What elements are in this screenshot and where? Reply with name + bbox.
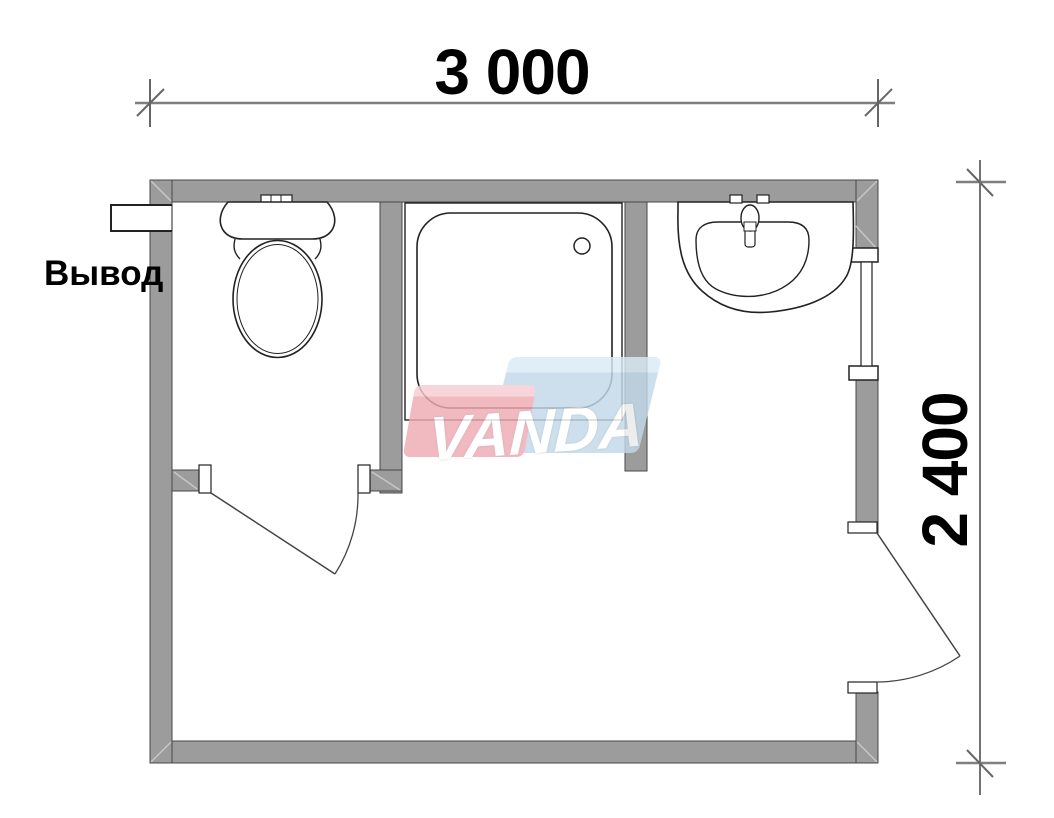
wall-partition-shower [625,202,647,471]
door-toilet-room [199,465,370,574]
wall-right-middle [856,380,878,533]
supply-valve-right [757,195,769,203]
door-jamb-right [358,465,370,493]
shower-tray [405,203,622,420]
door-jamb-bottom [848,682,877,693]
toilet-bowl [233,241,322,358]
dimension-width-label: 3 000 [432,40,592,104]
wall-partition-toilet [380,202,402,493]
toilet-cistern [220,202,334,239]
window-jamb-bottom [849,366,878,380]
floor-plan-drawing [0,0,1054,818]
pipe-outlet [111,205,172,231]
washbasin [678,195,854,312]
floor-plan-canvas: 3 000 2 400 Вывод VANDA [0,0,1054,818]
wall-bottom [150,741,878,763]
toilet [220,195,334,358]
window [849,248,878,380]
outlet-label: Вывод [44,255,163,293]
shower-drain [574,238,590,254]
door-swing-arc [335,493,358,574]
window-glazing [861,262,872,366]
door-leaf [211,493,335,574]
door-jamb-top [848,522,877,533]
dimension-height-label: 2 400 [913,385,977,555]
supply-valve-left [730,195,742,203]
door-swing-arc [877,656,960,682]
door-jamb-left [199,465,211,493]
